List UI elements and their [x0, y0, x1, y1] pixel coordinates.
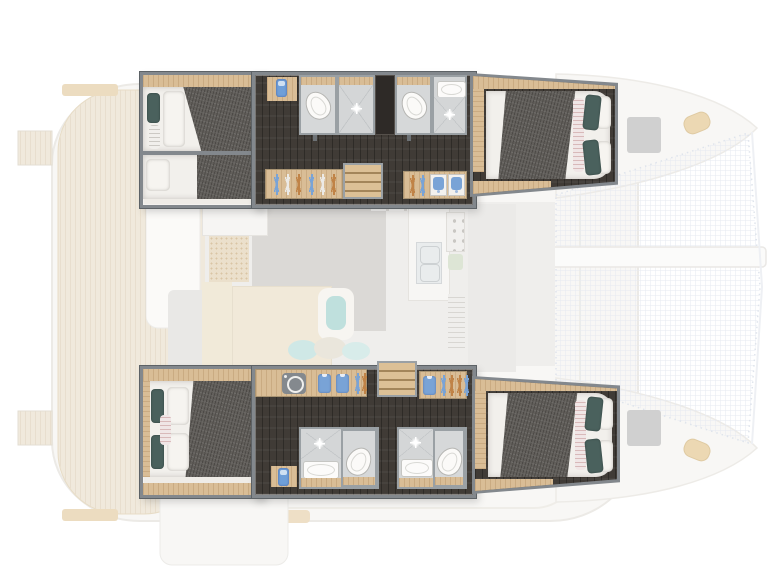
galley-wall-panel: [468, 204, 516, 372]
headboard: [143, 381, 150, 477]
stbd-hull-midsection: [252, 366, 476, 498]
toilet-icon: [396, 87, 431, 124]
hanger-icon: [306, 174, 317, 195]
hanger-icon: [328, 174, 339, 195]
head-shelf: [435, 477, 463, 485]
stove: [446, 212, 465, 252]
shower-drain-icon: [314, 438, 325, 449]
port-companionway-stairs: [343, 163, 383, 199]
hanger-icon: [317, 174, 328, 195]
forward-crossbeam: [520, 247, 766, 267]
bed-single: [143, 155, 255, 199]
hanger-icon: [293, 174, 304, 195]
port-fwd-wardrobe: [403, 171, 467, 199]
stbd-aft-cabin: [140, 366, 264, 498]
wc-cabinet: [271, 466, 297, 487]
head-shelf: [397, 77, 430, 85]
deck-bar: [62, 84, 118, 96]
toilet-icon: [300, 87, 335, 124]
hanger-icon: [359, 373, 370, 394]
stbd-aft-wardrobe: [255, 369, 367, 397]
head-shelf: [343, 477, 375, 485]
toilet-icon: [342, 443, 377, 480]
pegboard-panel: [209, 236, 249, 282]
head-shelf: [301, 77, 335, 85]
port-hull-midsection: [252, 72, 476, 208]
shower-drain-icon: [410, 437, 421, 448]
port-fwd-head-shower: [432, 75, 467, 135]
cabin-floor: [475, 379, 617, 491]
pillow-teal: [584, 439, 604, 474]
fridge-slat-panel: [448, 294, 465, 352]
saloon-sideboard: [202, 282, 232, 366]
runner-striped: [573, 98, 584, 172]
sofa-pillow: [314, 337, 346, 359]
port-aft-head-shower: [337, 75, 375, 135]
port-fwd-head-toilet-room: [395, 75, 432, 135]
door-jamb: [313, 135, 317, 141]
wc-cabinet: [267, 77, 297, 101]
head-shelf: [399, 478, 433, 487]
stbd-fwd-cabin: [472, 376, 620, 494]
hanger-icon: [282, 174, 293, 195]
wc-item-icon: [276, 79, 287, 97]
toilet-icon: [433, 443, 468, 480]
toilet-room: [341, 429, 377, 487]
deck-hatch: [627, 410, 661, 446]
cabin-shelf: [143, 369, 255, 381]
sofa-pillow: [342, 342, 370, 360]
daybed-cushion-teal: [326, 296, 346, 330]
sink-icon: [303, 461, 339, 479]
shower-drain-icon: [351, 103, 362, 114]
bed-double: [486, 91, 610, 179]
bed-double: [143, 381, 255, 477]
wc-item-icon: [278, 468, 289, 486]
swim-platform-port: [18, 131, 52, 165]
cabin-shelf: [475, 391, 486, 469]
bolster-striped: [160, 415, 171, 445]
saloon-cabinet: [202, 204, 268, 236]
bed-double: [488, 393, 612, 477]
deck-hatch: [627, 117, 661, 153]
sink-bowl: [420, 246, 440, 264]
bed-double: [143, 87, 255, 151]
duvet: [197, 155, 255, 199]
locker-dark: [375, 75, 395, 135]
port-fwd-cabin: [470, 73, 618, 197]
hanger-icon: [271, 174, 282, 195]
toilet-room: [433, 429, 465, 487]
cabin-floor: [473, 76, 615, 194]
stbd-fwd-wardrobe: [419, 371, 467, 399]
cabin-shelf: [473, 89, 484, 172]
cabin-shelf: [143, 483, 255, 495]
pillow-white: [163, 91, 185, 147]
pillow-white: [146, 159, 170, 191]
folded-shirt-icon: [318, 374, 331, 393]
runner-striped: [575, 400, 586, 471]
port-aft-head-toilet-room: [299, 75, 337, 135]
bolster-striped: [149, 125, 160, 149]
shower-drain-icon: [444, 109, 455, 120]
washing-machine-icon: [282, 373, 306, 394]
stbd-companionway-stairs: [377, 361, 417, 397]
door-jamb: [407, 135, 411, 141]
deck-bar: [62, 509, 118, 521]
hanger-icon: [461, 375, 472, 396]
towel-cubby: [448, 174, 465, 196]
hanger-icon: [417, 175, 428, 196]
catamaran-layout-plan: [0, 0, 768, 576]
head-shelf: [301, 478, 341, 487]
folded-shirt-icon: [423, 376, 436, 395]
port-aft-cabin: [140, 72, 264, 208]
folded-shirt-icon: [336, 374, 349, 393]
galley-plant: [448, 254, 463, 270]
pillow-teal: [147, 93, 160, 123]
galley-sink: [416, 242, 442, 284]
head-shelf: [339, 77, 373, 85]
sink-icon: [401, 459, 433, 477]
cabin-shelf: [143, 75, 255, 87]
stbd-aft-head: [299, 427, 379, 489]
sink-bowl: [420, 264, 440, 282]
towel-cubby: [430, 174, 447, 196]
swim-platform-starboard: [18, 411, 52, 445]
stbd-fwd-head: [397, 427, 467, 489]
sink-icon: [437, 81, 466, 98]
port-aft-wardrobe: [265, 169, 343, 199]
